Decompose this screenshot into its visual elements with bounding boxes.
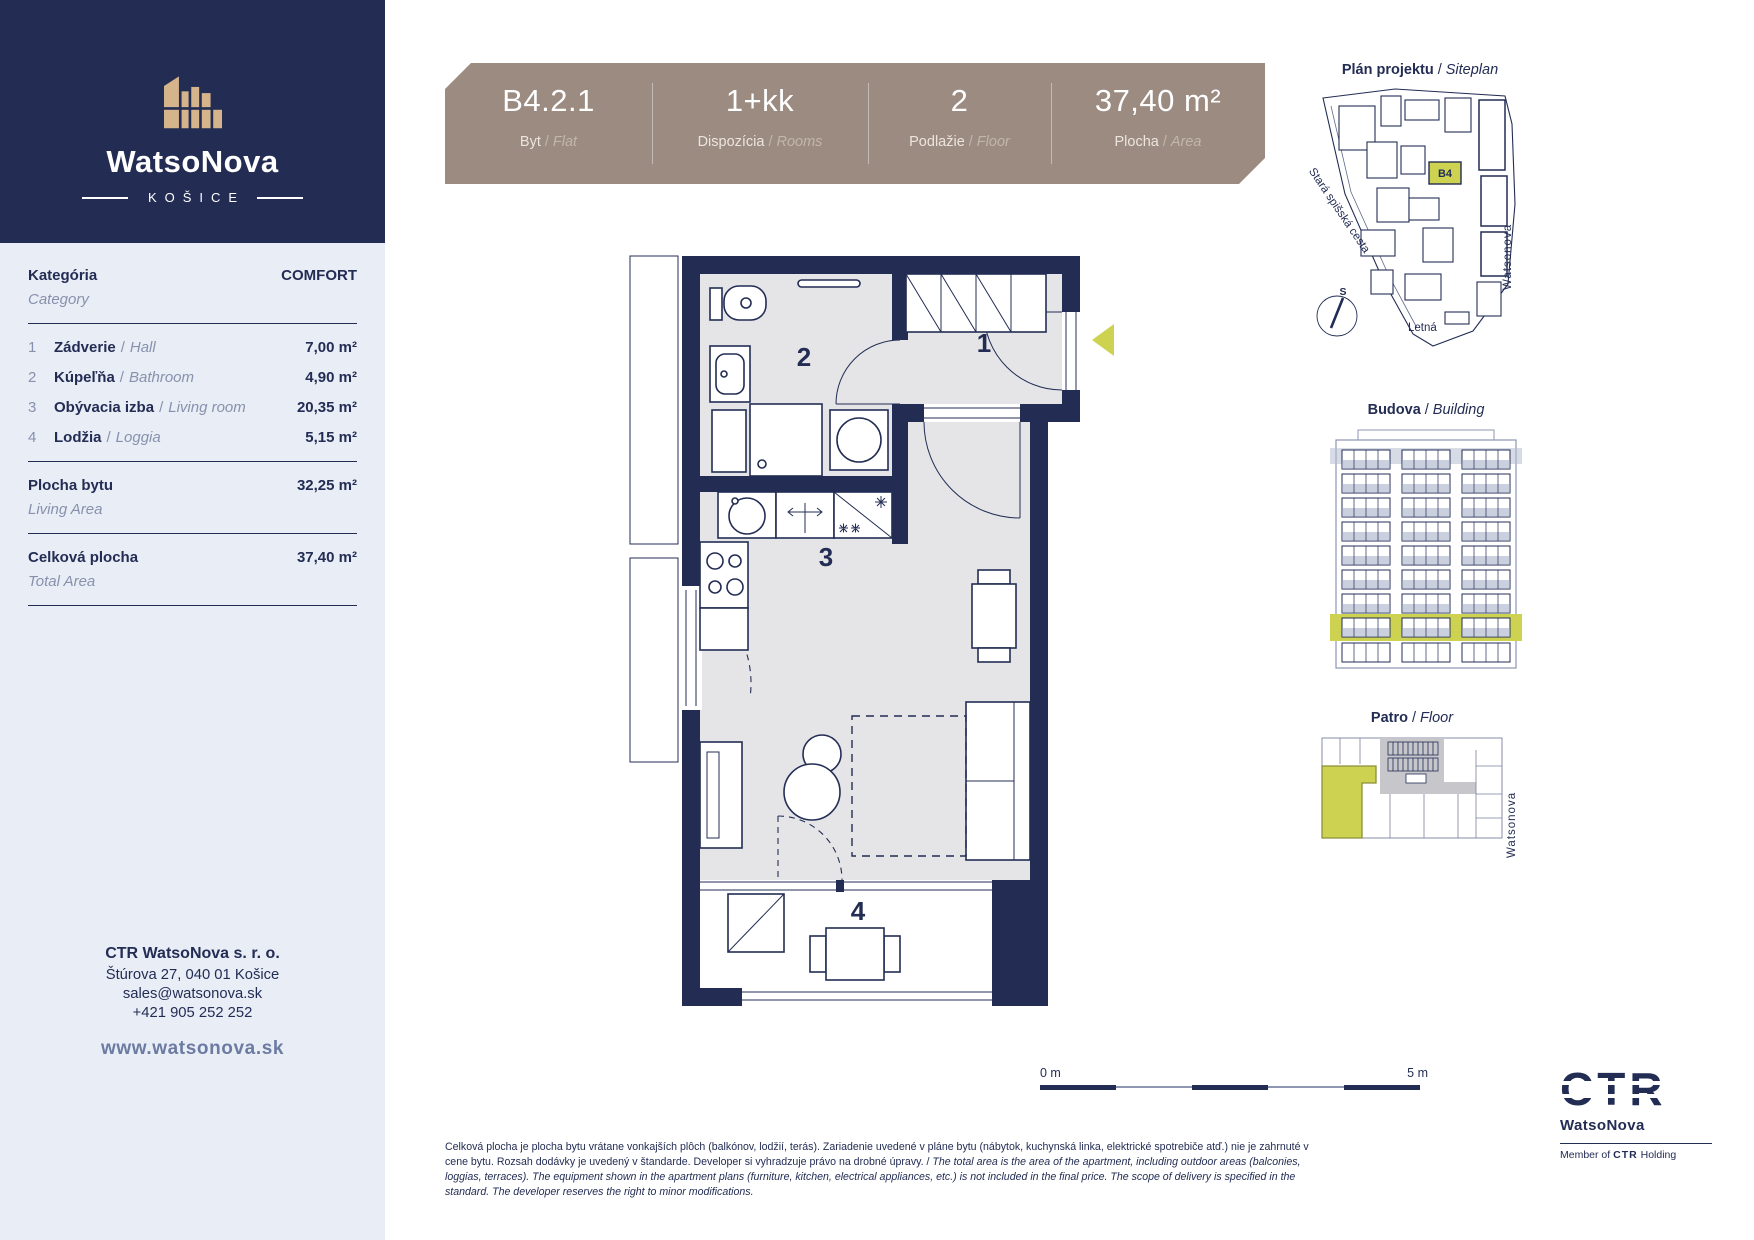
entry-arrow-marker: [1092, 324, 1114, 356]
category-block: Kategória COMFORT Category: [28, 243, 357, 308]
floorplate-title-en: Floor: [1420, 710, 1453, 726]
living-area-label: Plocha bytu: [28, 477, 113, 494]
apartment-floorplan: 1 2 3 4: [600, 240, 1120, 1040]
unit-header-band: B4.2.1 Byt/Flat 1+kk Dispozícia/Rooms 2 …: [445, 63, 1265, 184]
scale-end-label: 5 m: [1407, 1066, 1428, 1080]
wardrobe-icon: [906, 274, 1046, 332]
divider: [28, 461, 357, 462]
slash: /: [159, 399, 163, 416]
room-name: Obývacia izba: [54, 399, 154, 416]
slash: /: [1412, 710, 1416, 726]
slash: /: [107, 429, 111, 446]
room-label-2: 2: [797, 342, 811, 372]
contact-block: CTR WatsoNova s. r. o. Štúrova 27, 040 0…: [0, 945, 385, 1024]
floor-label: Podlažie: [909, 134, 965, 150]
room-name: Lodžia: [54, 429, 102, 446]
slash: /: [120, 369, 124, 386]
living-area-label-en: Living Area: [28, 501, 357, 518]
flat-number: B4.2.1: [445, 83, 652, 119]
member-suffix: Holding: [1641, 1149, 1677, 1161]
email-link[interactable]: sales@watsonova.sk: [0, 986, 385, 1002]
brand-city-row: KOŠICE: [82, 190, 303, 205]
loggia-storage-box: [728, 894, 784, 952]
siteplan-title-en: Siteplan: [1446, 62, 1498, 78]
tall-cabinet: [700, 742, 742, 848]
neighbour-strip: [630, 256, 678, 544]
header-rooms: 1+kk Dispozícia/Rooms: [652, 63, 868, 184]
divider: [28, 533, 357, 534]
room-number: 4: [28, 429, 54, 446]
room-name: Kúpeľňa: [54, 369, 115, 386]
area-value: 37,40 m²: [1051, 83, 1265, 119]
dining-table-icon: [972, 570, 1016, 662]
room-row-bathroom: 2 Kúpeľňa / Bathroom 4,90 m²: [28, 369, 357, 386]
svg-text:S: S: [1339, 286, 1346, 298]
shower-icon: [750, 404, 822, 476]
company-name: CTR WatsoNova s. r. o.: [0, 945, 385, 963]
slash: /: [1438, 62, 1442, 78]
scale-bar: 0 m 5 m: [1040, 1066, 1428, 1090]
siteplan-unit-b4: B4: [1429, 162, 1461, 184]
living-area-block: Plocha bytu 32,25 m² Living Area: [28, 477, 357, 518]
phone-link[interactable]: +421 905 252 252: [0, 1005, 385, 1021]
website-link[interactable]: www.watsonova.sk: [0, 1038, 385, 1060]
room-area: 20,35 m²: [297, 399, 357, 416]
room-name-en: Hall: [130, 339, 156, 356]
room-row-living: 3 Obývacia izba / Living room 20,35 m²: [28, 399, 357, 416]
room-name-en: Bathroom: [129, 369, 194, 386]
divider: [28, 605, 357, 606]
room-area: 4,90 m²: [305, 369, 357, 386]
header-area: 37,40 m² Plocha/Area: [1051, 63, 1265, 184]
brand-city: KOŠICE: [140, 190, 245, 205]
divider: [1560, 1143, 1712, 1144]
floor-value: 2: [868, 83, 1051, 119]
living-area-value: 32,25 m²: [297, 477, 357, 494]
decorative-line: [82, 197, 128, 199]
scale-start-label: 0 m: [1040, 1066, 1061, 1080]
round-table-icon: [784, 764, 840, 820]
flat-label: Byt: [520, 134, 541, 150]
ctr-logo-text: CTR: [1560, 1063, 1667, 1115]
building-title: Budova/Building: [1330, 402, 1522, 418]
scale-track: [1040, 1084, 1428, 1090]
rooms-label-en: Rooms: [776, 134, 822, 150]
slash: /: [969, 134, 973, 150]
category-value: COMFORT: [281, 267, 357, 284]
street-label-watsonova: Watsonova: [1502, 160, 1514, 290]
room-name-en: Loggia: [116, 429, 161, 446]
siteplan-title: Plán projektu/Siteplan: [1300, 62, 1540, 78]
unit-summary: Kategória COMFORT Category 1 Zádverie / …: [0, 243, 385, 1240]
room-label-4: 4: [851, 896, 866, 926]
divider: [28, 323, 357, 324]
category-label: Kategória: [28, 267, 97, 284]
header-flat: B4.2.1 Byt/Flat: [445, 63, 652, 184]
total-area-label: Celková plocha: [28, 549, 138, 566]
disclaimer-text: Celková plocha je plocha bytu vrátane vo…: [445, 1140, 1333, 1200]
total-area-block: Celková plocha 37,40 m² Total Area: [28, 549, 357, 590]
room-label-1: 1: [977, 328, 991, 358]
ctr-logo-block: CTR WatsoNova Member of CTR Holding: [1560, 1066, 1725, 1161]
sidebar: WatsoNova KOŠICE Kategória COMFORT Categ…: [0, 0, 385, 1240]
siteplan-title-sk: Plán projektu: [1342, 62, 1434, 78]
kitchen-sink-icon: [718, 492, 776, 538]
room-row-loggia: 4 Lodžia / Loggia 5,15 m²: [28, 429, 357, 446]
floorplate-title-sk: Patro: [1371, 710, 1408, 726]
street-label-letna: Letná: [1408, 322, 1437, 334]
floorplate-title: Patro/Floor: [1320, 710, 1504, 726]
floorplate-street-watsonova: Watsonova: [1506, 748, 1518, 858]
room-area: 5,15 m²: [305, 429, 357, 446]
brand-panel: WatsoNova KOŠICE: [0, 0, 385, 243]
decorative-line: [257, 197, 303, 199]
total-area-label-en: Total Area: [28, 573, 357, 590]
ctr-logo: CTR: [1560, 1066, 1667, 1112]
room-label-3: 3: [819, 542, 833, 572]
category-label-en: Category: [28, 291, 357, 308]
slash: /: [121, 339, 125, 356]
floorplate-plan: [1320, 736, 1504, 842]
room-name-en: Living room: [168, 399, 246, 416]
compass-icon: S: [1317, 286, 1357, 336]
rooms-label: Dispozícia: [698, 134, 765, 150]
room-name: Zádverie: [54, 339, 116, 356]
ctr-member-line: Member of CTR Holding: [1560, 1149, 1725, 1161]
room-row-hall: 1 Zádverie / Hall 7,00 m²: [28, 339, 357, 356]
toilet-icon: [710, 286, 766, 320]
building-logo-icon: [164, 72, 222, 130]
room-number: 3: [28, 399, 54, 416]
dishwasher-icon: [834, 492, 892, 538]
neighbour-strip: [630, 558, 678, 762]
total-area-value: 37,40 m²: [297, 549, 357, 566]
area-label: Plocha: [1114, 134, 1158, 150]
rooms-value: 1+kk: [652, 83, 868, 119]
slash: /: [768, 134, 772, 150]
header-floor: 2 Podlažie/Floor: [868, 63, 1051, 184]
ctr-watsonova: WatsoNova: [1560, 1117, 1725, 1134]
towel-rail-icon: [798, 280, 860, 287]
slash: /: [1163, 134, 1167, 150]
brand-name: WatsoNova: [106, 144, 278, 180]
company-address: Štúrova 27, 040 01 Košice: [0, 967, 385, 983]
cooktop-symbol: [776, 492, 834, 538]
washing-machine-icon: [830, 410, 888, 470]
page: WatsoNova KOŠICE Kategória COMFORT Categ…: [0, 0, 1754, 1240]
sofa-icon: [966, 702, 1030, 860]
slash: /: [1425, 402, 1429, 418]
building-title-sk: Budova: [1368, 402, 1421, 418]
loggia-table-icon: [810, 928, 900, 980]
washbasin-icon: [710, 346, 750, 402]
building-title-en: Building: [1433, 402, 1485, 418]
member-brand: CTR: [1613, 1149, 1638, 1161]
building-elevation: [1330, 424, 1522, 670]
stove-icon: [700, 542, 748, 650]
slash: /: [545, 134, 549, 150]
room-number: 2: [28, 369, 54, 386]
bath-cabinet: [712, 410, 746, 472]
svg-text:B4: B4: [1438, 168, 1453, 180]
room-number: 1: [28, 339, 54, 356]
floor-label-en: Floor: [977, 134, 1010, 150]
member-prefix: Member of: [1560, 1149, 1610, 1161]
room-area: 7,00 m²: [305, 339, 357, 356]
flat-label-en: Flat: [553, 134, 577, 150]
area-label-en: Area: [1171, 134, 1202, 150]
